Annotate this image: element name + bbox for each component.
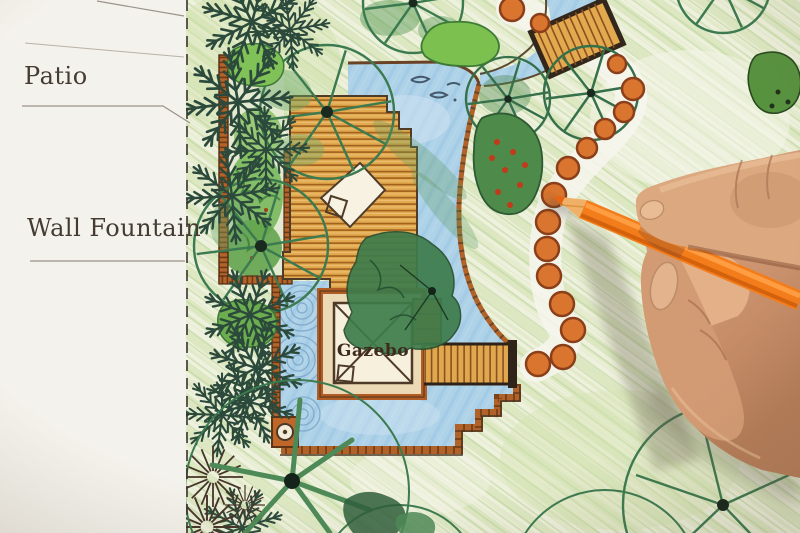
photo-vignette	[0, 0, 800, 533]
landscape-plan-photo: Patio Wall Fountain Gazebo	[0, 0, 800, 533]
landscape-plan-drawing: Patio Wall Fountain Gazebo	[0, 0, 800, 533]
